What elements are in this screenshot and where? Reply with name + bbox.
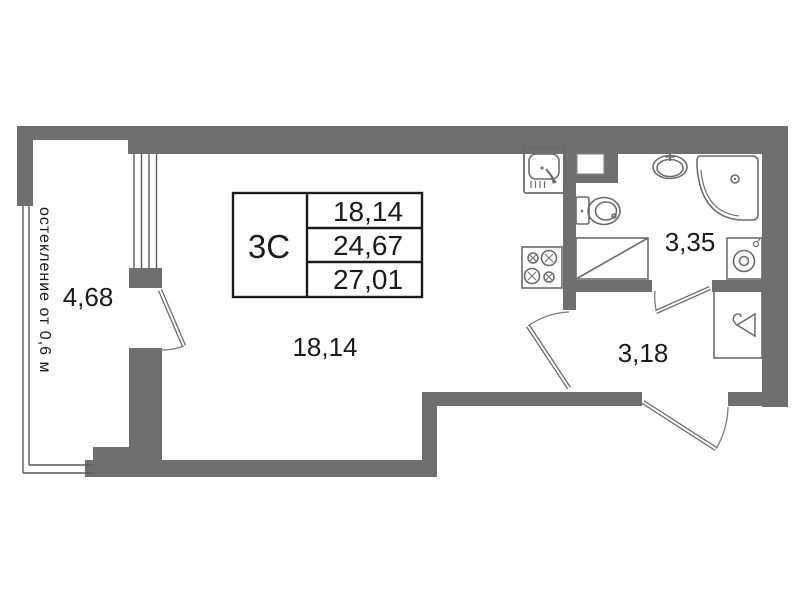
wall-window-mid-block xyxy=(129,268,162,288)
wall-bottom-left xyxy=(85,460,437,477)
wall-left-upper xyxy=(17,126,33,206)
unit-area-row-2: 24,67 xyxy=(333,230,403,261)
bathroom-area-label: 3,35 xyxy=(665,227,716,257)
hallway-area-label: 3,18 xyxy=(618,338,669,368)
corner-shower-icon xyxy=(697,156,758,220)
shower-tray-icon xyxy=(576,238,648,279)
toilet-icon xyxy=(576,197,620,225)
wall-right xyxy=(762,126,788,407)
washbasin-icon xyxy=(653,152,687,179)
wall-bottom-right xyxy=(728,392,788,406)
balcony-glazing xyxy=(23,206,93,473)
stove-icon xyxy=(522,247,562,288)
unit-code-label: 3С xyxy=(248,228,290,265)
wall-left-lower xyxy=(129,348,162,462)
hanger-icon xyxy=(733,314,755,336)
balcony-door-icon xyxy=(160,290,184,350)
hallway-door-icon xyxy=(528,312,569,388)
vent-shaft xyxy=(577,154,604,174)
glazing-note-label: остекление от 0,6 м xyxy=(36,207,53,373)
living-room-area-label: 18,14 xyxy=(292,332,357,362)
washing-machine-icon xyxy=(727,238,762,279)
wall-top-balcony xyxy=(17,126,128,140)
wardrobe-icon xyxy=(714,290,762,358)
balcony-window-icon xyxy=(134,154,157,268)
wall-bath-bottom-left xyxy=(563,280,652,292)
wall-top-main xyxy=(128,126,788,154)
bathroom-door-icon xyxy=(655,288,710,313)
wall-step-block xyxy=(93,447,129,462)
unit-area-row-1: 18,14 xyxy=(333,196,403,227)
doors xyxy=(160,288,728,449)
kitchen-sink-icon xyxy=(524,148,564,193)
balcony-area-label: 4,68 xyxy=(63,282,114,312)
unit-area-row-3: 27,01 xyxy=(333,264,403,295)
wall-room-bottom xyxy=(422,392,642,406)
floor-plan-drawing: 3С 18,14 24,67 27,01 4,68 18,14 3,35 3,1… xyxy=(0,0,799,600)
entrance-door-icon xyxy=(643,402,728,449)
floor-plan: 3С 18,14 24,67 27,01 4,68 18,14 3,35 3,1… xyxy=(0,0,799,600)
